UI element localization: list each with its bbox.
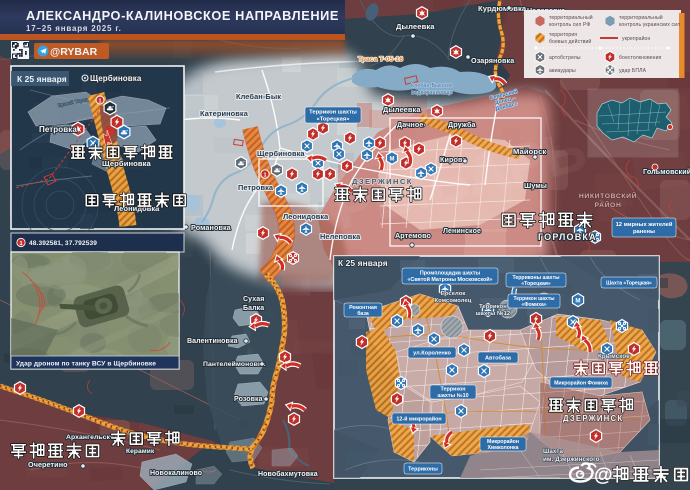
svg-text:АЛЕКСАНДРО-КАЛИНОВСКОЕ НАПРАВЛ: АЛЕКСАНДРО-КАЛИНОВСКОЕ НАПРАВЛЕНИЕ xyxy=(26,8,339,23)
svg-text:Валентиновка: Валентиновка xyxy=(187,338,238,345)
svg-text:Клебан-Бык: Клебан-Бык xyxy=(236,92,281,101)
svg-text:Траса Т-05-16: Траса Т-05-16 xyxy=(358,56,403,63)
svg-text:К 25 января: К 25 января xyxy=(17,74,67,84)
svg-text:12 мирных жителей: 12 мирных жителей xyxy=(616,221,673,228)
svg-text:«Святой Матроны Московской»: «Святой Матроны Московской» xyxy=(407,276,492,283)
svg-text:Терриконы: Терриконы xyxy=(408,466,438,472)
svg-text:48.392581, 37.792539: 48.392581, 37.792539 xyxy=(29,240,97,247)
svg-text:Террикон шахты: Террикон шахты xyxy=(309,110,357,116)
svg-text:1: 1 xyxy=(99,99,102,105)
svg-text:Курдюмовка: Курдюмовка xyxy=(478,4,527,13)
svg-text:ул.Короленко: ул.Короленко xyxy=(413,351,451,357)
svg-text:Дачное: Дачное xyxy=(397,120,423,129)
svg-text:Удар дроном по танку ВСУ в Щер: Удар дроном по танку ВСУ в Щербиновке xyxy=(16,360,156,368)
svg-text:Пантелеймоновка: Пантелеймоновка xyxy=(203,360,265,368)
svg-text:Сухая: Сухая xyxy=(243,296,264,303)
svg-text:Петровка: Петровка xyxy=(39,125,77,134)
svg-text:территориальный: территориальный xyxy=(619,14,663,21)
svg-text:территориальный: территориальный xyxy=(549,14,593,21)
svg-text:ГОРЛОВКА: ГОРЛОВКА xyxy=(538,232,597,242)
svg-text:Катериновка: Катериновка xyxy=(200,109,249,118)
svg-text:укрепрайон: укрепрайон xyxy=(622,35,650,42)
svg-text:Артемово: Артемово xyxy=(395,231,432,240)
svg-text:Щербиновка: Щербиновка xyxy=(257,149,305,158)
svg-text:РАЙОН: РАЙОН xyxy=(595,200,622,209)
svg-text:Леонидовка: Леонидовка xyxy=(283,212,329,221)
svg-text:территория: территория xyxy=(549,32,577,38)
svg-text:Ленинское: Ленинское xyxy=(443,228,481,235)
svg-text:К 25 января: К 25 января xyxy=(338,258,388,268)
svg-text:Химколонка: Химколонка xyxy=(487,445,518,451)
svg-text:Ремонтная: Ремонтная xyxy=(349,305,377,311)
svg-text:Дылеевка: Дылеевка xyxy=(396,22,435,31)
svg-text:Очеретино: Очеретино xyxy=(28,460,68,469)
svg-text:@RYBAR: @RYBAR xyxy=(50,46,98,58)
svg-text:шахты №10: шахты №10 xyxy=(437,393,468,399)
svg-text:им. Дзержинского: им. Дзержинского xyxy=(543,456,600,463)
svg-text:M: M xyxy=(575,297,580,304)
svg-text:шахты №12: шахты №12 xyxy=(476,311,511,317)
svg-text:Новобахмутовка: Новобахмутовка xyxy=(258,470,318,478)
svg-text:Микрорайон Фомиха: Микрорайон Фомиха xyxy=(554,379,608,386)
svg-text:Керамик: Керамик xyxy=(126,448,155,455)
svg-text:1: 1 xyxy=(19,241,22,247)
svg-text:Комсомолец: Комсомолец xyxy=(435,298,472,304)
svg-text:Клебан-Быкское: Клебан-Быкское xyxy=(411,83,453,89)
svg-text:Озаряновка: Озаряновка xyxy=(471,56,515,65)
svg-text:база: база xyxy=(357,310,369,317)
svg-text:@: @ xyxy=(594,465,613,486)
svg-text:контроль украинских сил: контроль украинских сил xyxy=(619,22,680,28)
svg-text:Новокалиново: Новокалиново xyxy=(150,470,202,477)
svg-text:боестолкновения: боестолкновения xyxy=(619,55,662,61)
svg-text:«Торецкая»: «Торецкая» xyxy=(521,281,551,287)
svg-text:Дылеевка: Дылеевка xyxy=(383,105,421,114)
svg-text:ДЗЕРЖИНСК: ДЗЕРЖИНСК xyxy=(563,414,623,423)
svg-text:ранены: ранены xyxy=(633,229,655,235)
svg-text:Крымское: Крымское xyxy=(598,353,630,360)
svg-text:водохранилище: водохранилище xyxy=(411,90,452,96)
svg-text:Террикон: Террикон xyxy=(440,387,465,393)
svg-text:артобстрелы: артобстрелы xyxy=(549,55,581,61)
svg-text:Романовка: Романовка xyxy=(191,223,232,232)
svg-text:Петровка: Петровка xyxy=(238,183,274,192)
svg-text:M: M xyxy=(390,156,395,162)
svg-text:авиаудары: авиаудары xyxy=(549,68,576,74)
svg-text:1: 1 xyxy=(263,173,266,179)
svg-text:Балка: Балка xyxy=(243,305,264,312)
svg-text:НИКИТОВСКИЙ: НИКИТОВСКИЙ xyxy=(579,191,637,200)
svg-text:Микрорайон: Микрорайон xyxy=(487,438,519,445)
svg-text:Промплощадка шахты: Промплощадка шахты xyxy=(420,271,481,277)
svg-text:Шахта «Торецкая»: Шахта «Торецкая» xyxy=(606,280,652,286)
svg-text:Дружба: Дружба xyxy=(448,120,477,129)
svg-text:Поселок: Поселок xyxy=(441,291,466,297)
svg-text:Гольмовский: Гольмовский xyxy=(643,167,690,176)
svg-text:12-й микрорайон: 12-й микрорайон xyxy=(396,415,441,422)
svg-text:удар БПЛА: удар БПЛА xyxy=(619,68,647,74)
svg-text:Террикон: Террикон xyxy=(479,304,507,310)
svg-text:боевых действий: боевых действий xyxy=(549,38,591,45)
svg-text:Розовка: Розовка xyxy=(234,396,263,403)
svg-text:Автобаза: Автобаза xyxy=(485,355,512,362)
svg-text:Шахта: Шахта xyxy=(543,448,564,455)
svg-text:Щербиновка: Щербиновка xyxy=(90,74,142,83)
svg-text:Терриконы шахты: Терриконы шахты xyxy=(512,275,560,281)
svg-text:«Торецкая»: «Торецкая» xyxy=(316,117,349,123)
svg-text:контроль сил РФ: контроль сил РФ xyxy=(549,22,590,28)
svg-text:17–25 января 2025 г.: 17–25 января 2025 г. xyxy=(26,24,122,33)
svg-text:«Фомиха»: «Фомиха» xyxy=(521,302,546,308)
